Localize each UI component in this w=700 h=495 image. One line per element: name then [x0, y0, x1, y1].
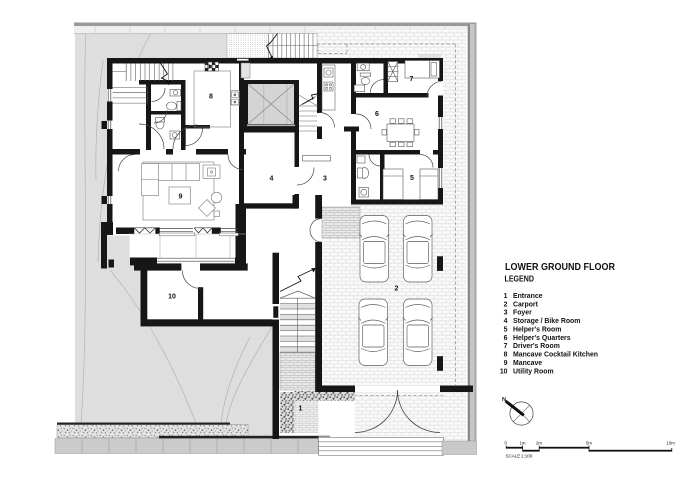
svg-text:2: 2 [504, 301, 508, 308]
svg-text:10: 10 [168, 294, 176, 301]
svg-text:5m: 5m [586, 440, 592, 445]
svg-text:10m: 10m [667, 440, 676, 445]
svg-text:SCALE: SCALE [506, 454, 521, 459]
svg-text:Utility Room: Utility Room [513, 368, 554, 375]
svg-text:1: 1 [504, 293, 508, 300]
svg-text:3: 3 [504, 310, 508, 317]
svg-text:N: N [502, 397, 506, 403]
svg-text:9: 9 [504, 360, 508, 367]
svg-text:Entrance: Entrance [513, 293, 543, 300]
svg-text:2: 2 [395, 286, 399, 293]
svg-text:5: 5 [410, 175, 414, 182]
svg-text:6: 6 [504, 335, 508, 342]
svg-text:7: 7 [504, 343, 508, 350]
svg-text:7: 7 [410, 76, 414, 83]
svg-text:2m: 2m [536, 440, 542, 445]
svg-text:1:100: 1:100 [521, 454, 533, 459]
svg-text:Helper's Quarters: Helper's Quarters [513, 335, 571, 342]
svg-text:5: 5 [504, 327, 508, 334]
svg-text:1: 1 [299, 405, 303, 412]
svg-text:Mancave Cocktail Kitchen: Mancave Cocktail Kitchen [513, 352, 598, 359]
svg-text:Helper's Room: Helper's Room [513, 327, 561, 334]
svg-text:6: 6 [375, 111, 379, 118]
svg-text:Foyer: Foyer [513, 310, 532, 317]
svg-text:10: 10 [500, 368, 508, 375]
svg-text:8: 8 [504, 352, 508, 359]
svg-text:9: 9 [179, 194, 183, 201]
svg-text:3: 3 [323, 176, 327, 183]
svg-text:Mancave: Mancave [513, 360, 542, 367]
svg-text:Storage / Bike Room: Storage / Bike Room [513, 318, 580, 325]
svg-text:4: 4 [504, 318, 508, 325]
svg-text:8: 8 [209, 94, 213, 101]
svg-text:1m: 1m [520, 440, 526, 445]
svg-text:LOWER GROUND FLOOR: LOWER GROUND FLOOR [505, 261, 615, 273]
svg-text:4: 4 [270, 176, 274, 183]
svg-text:LEGEND: LEGEND [505, 275, 535, 284]
svg-text:Driver's Room: Driver's Room [513, 343, 560, 350]
svg-text:Carport: Carport [513, 301, 539, 308]
